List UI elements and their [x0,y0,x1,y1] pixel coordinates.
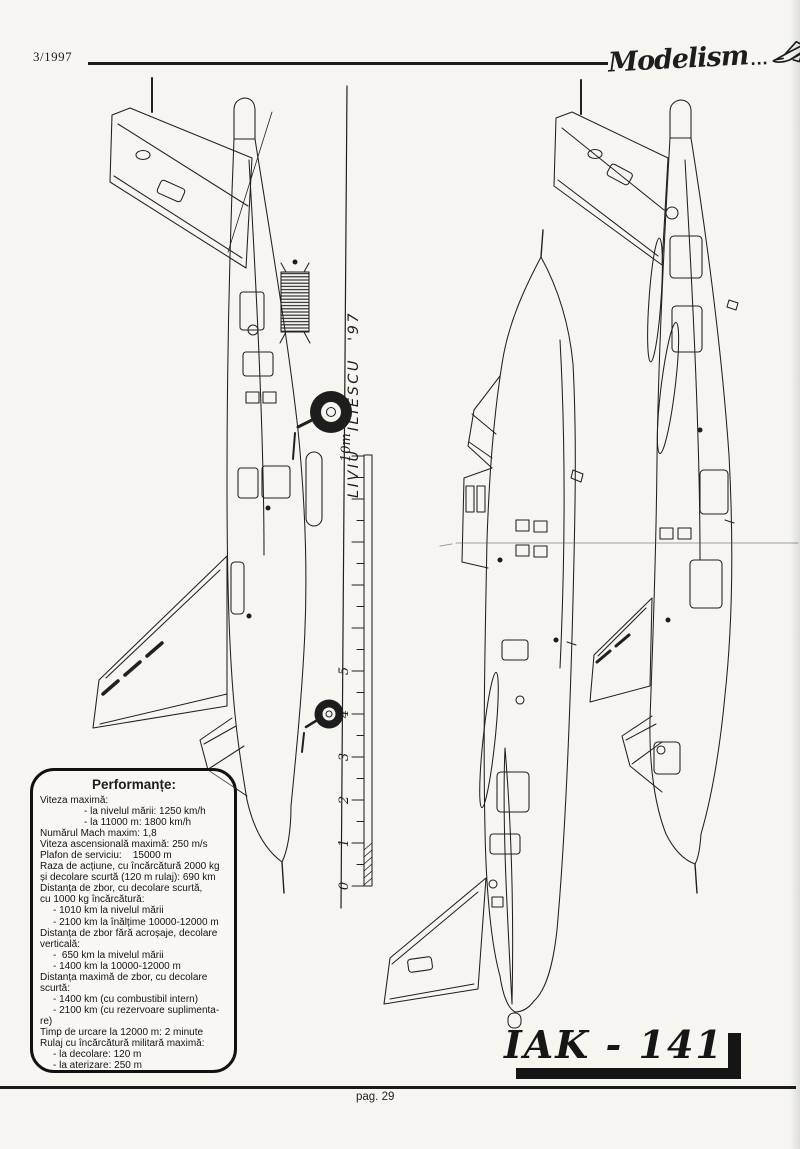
performance-spec-box: Performanțe: Viteza maximă:- la nivelul … [30,768,237,1073]
ruler-label-4: 4 [337,710,352,719]
intake-slat [477,486,485,512]
wing-edge-sliver [476,672,502,809]
tail-nozzle [670,100,691,138]
fin-spar-line [562,128,664,210]
spec-line: - la nivelul mării: 1250 km/h [40,806,228,817]
spec-line: - 1400 km (cu combustibil intern) [40,994,228,1005]
wing-slat-actuators [597,635,629,662]
spec-line: - 2100 km (cu rezervoare suplimenta- [40,1005,228,1016]
ruler-label-1: 1 [337,839,352,847]
spec-line: - 650 km la mivelul mării [40,950,228,961]
pitot-tube [541,230,543,257]
fuselage-left-edge [484,257,541,976]
canopy [468,376,500,468]
spec-line: Distanța de zbor fără acroșaje, decolare [40,928,228,939]
model-title-bracket [728,1033,741,1079]
page-number: pag. 29 [356,1091,394,1103]
magazine-page: 3/1997 Modelism ... [0,0,800,1149]
spec-line: Viteza ascensională maximă: 250 m/s [40,839,228,850]
intake-slat [466,486,474,512]
antenna-blade-line [228,112,272,252]
fin-spar-line [118,124,248,206]
main-gear-door [293,433,295,459]
pitot-tube [695,864,697,893]
fin-inspection-hole [136,151,150,160]
spec-line: și decolare scurtă (120 m rulaj): 690 km [40,872,228,883]
fin-panel [156,179,185,202]
spec-line: Plafon de serviciu: 15000 m [40,850,228,861]
scan-edge-shadow [790,0,800,1149]
ruler-label-3: 3 [337,753,352,761]
scan-seam-mark [440,544,452,546]
canopy-frames [204,726,244,768]
pitot-tube [282,862,284,893]
wing-inner-line [598,608,646,656]
ruler-label-5: 5 [337,667,352,675]
wing-inner-lines [100,570,227,724]
footer-rule [0,1086,796,1089]
spec-line: - la 11000 m: 1800 km/h [40,817,228,828]
spec-line: - la aterizare: 250 m [40,1060,228,1071]
drop-tank [306,452,322,526]
spec-line: Timp de urcare la 12000 m: 2 minute [40,1027,228,1038]
tail-nozzle [234,98,255,139]
main-gear-strut [298,419,314,427]
spec-line: Viteza maximă: [40,795,228,806]
spec-line: cu 1000 kg încărcătură: [40,894,228,905]
model-title-underline [516,1068,741,1079]
flap-blade-sliver [504,748,513,1004]
ruler-bar [364,455,372,886]
spec-line: Distanța maximă de zbor, cu decolare [40,972,228,983]
aircraft-side-view-opposite [554,80,738,893]
spec-line: Numărul Mach maxim: 1,8 [40,828,228,839]
artist-signature: LIVIU ILIESCU '97 [346,311,362,498]
spec-line: re) [40,1016,228,1027]
fuselage-spine-line [560,340,564,668]
spec-line: - 2100 km la înălțime 10000-12000 m [40,917,228,928]
ruler-end-hatch [364,843,372,885]
fin-panel [407,956,433,972]
fuselage-left-edge [227,139,247,800]
spec-line: Distanța de zbor, cu decolare scurtă, [40,883,228,894]
nose-cone [666,834,701,864]
spec-box-title: Performanțe: [40,777,228,792]
rudder-line [114,176,242,258]
fuselage-right-edge [691,138,732,834]
model-title: IAK - 141 [504,1022,744,1067]
spec-line: - 1400 km la 10000-12000 m [40,961,228,972]
spec-line: scurtă: [40,983,228,994]
canopy [622,716,662,792]
wing-slat-actuators [103,643,162,694]
exhaust-nozzle [500,976,534,1012]
spec-line: Rulaj cu încărcătură militară maximă: [40,1038,228,1049]
spec-line: - la decolare: 120 m [40,1049,228,1060]
fin-inner-lines [390,892,478,999]
fuselage-spine-line [685,160,700,560]
ruler-label-2: 2 [337,796,352,805]
spec-line: - 1010 km la nivelul mării [40,905,228,916]
nose-gear-door [302,733,304,752]
fuselage-right-edge [534,257,575,1001]
spec-line: Raza de acțiune, cu încărcătură 2000 kg [40,861,228,872]
fuselage-panel-details [489,470,583,907]
ruler-label-0: 0 [337,882,352,890]
aircraft-side-view-clean [384,230,583,1028]
spec-line: verticală: [40,939,228,950]
missile-pod-hatched [280,263,310,343]
flap-edge-sliver [653,322,683,455]
spec-lines: Viteza maximă:- la nivelul mării: 1250 k… [40,795,228,1071]
fuselage-left-edge [650,138,670,834]
rudder-line [558,180,658,256]
nose-cone [247,800,291,862]
wing-planform [590,598,652,702]
